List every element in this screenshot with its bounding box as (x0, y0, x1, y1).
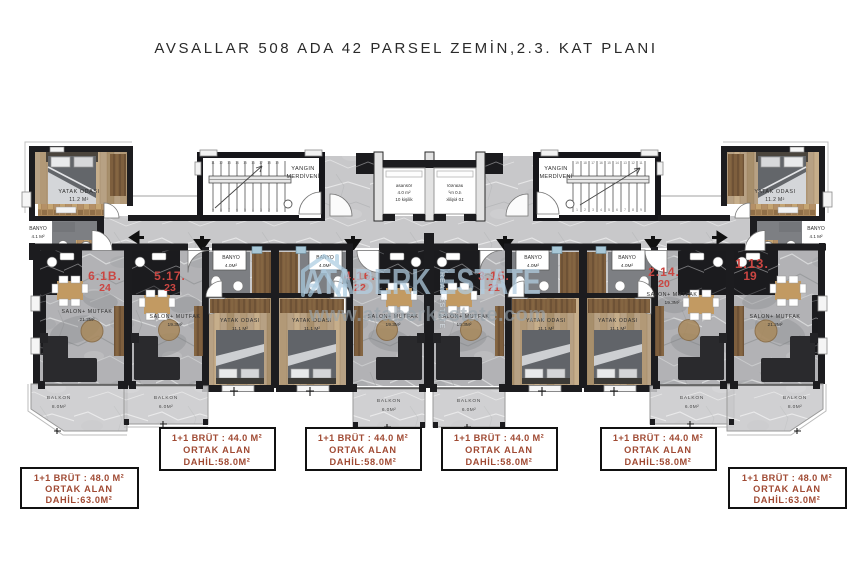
svg-text:BALKON: BALKON (783, 395, 807, 401)
svg-text:6: 6 (236, 208, 238, 212)
svg-text:4.0M²: 4.0M² (621, 263, 634, 269)
svg-text:1+1 BRÜT : 44.0 M²: 1+1 BRÜT : 44.0 M² (613, 433, 703, 443)
svg-text:1: 1 (276, 208, 278, 212)
svg-text:19: 19 (743, 269, 757, 283)
svg-text:BANYO: BANYO (524, 255, 542, 261)
svg-text:19.3M²: 19.3M² (168, 322, 183, 328)
svg-text:24: 24 (99, 282, 111, 294)
svg-text:8.0M²: 8.0M² (788, 404, 802, 410)
svg-text:MERDİVENİ: MERDİVENİ (287, 173, 320, 180)
svg-text:8.0M²: 8.0M² (52, 404, 66, 410)
svg-text:2.14.: 2.14. (648, 265, 680, 279)
svg-text:BALKON: BALKON (457, 398, 481, 404)
svg-text:4.0M²: 4.0M² (225, 263, 238, 269)
svg-text:13: 13 (623, 161, 627, 165)
svg-text:6.0M²: 6.0M² (159, 404, 173, 410)
svg-text:11: 11 (639, 161, 643, 165)
svg-text:8: 8 (632, 208, 634, 212)
svg-text:ORTAK ALAN: ORTAK ALAN (624, 445, 692, 455)
svg-text:11.2 M²: 11.2 M² (765, 197, 784, 203)
svg-text:19: 19 (575, 161, 579, 165)
svg-text:ORTAK ALAN: ORTAK ALAN (329, 445, 397, 455)
svg-text:www.ataberkestate.com: www.ataberkestate.com (308, 304, 547, 326)
svg-text:4: 4 (600, 208, 602, 212)
svg-text:5: 5 (608, 208, 610, 212)
svg-text:YATAK ODASI: YATAK ODASI (220, 318, 260, 324)
svg-text:10 kişilik: 10 kişilik (395, 197, 413, 202)
svg-text:ORTAK ALAN: ORTAK ALAN (753, 484, 821, 494)
svg-text:7: 7 (228, 208, 230, 212)
svg-text:DAHİL:58.0M²: DAHİL:58.0M² (330, 457, 397, 467)
svg-text:2: 2 (584, 208, 586, 212)
svg-text:14: 14 (615, 161, 619, 165)
svg-text:4.0 m²: 4.0 m² (397, 190, 410, 195)
svg-text:1+1 BRÜT : 48.0 M²: 1+1 BRÜT : 48.0 M² (34, 473, 124, 483)
svg-text:MERDİVENİ: MERDİVENİ (540, 173, 573, 180)
svg-text:14: 14 (235, 161, 239, 165)
svg-text:18: 18 (267, 161, 271, 165)
svg-text:11.1 M²: 11.1 M² (304, 326, 320, 332)
svg-text:SALON+ MUTFAK: SALON+ MUTFAK (750, 314, 801, 320)
svg-text:BANYO: BANYO (222, 255, 240, 261)
svg-text:DAHİL:58.0M²: DAHİL:58.0M² (625, 457, 692, 467)
svg-text:4.1 M²: 4.1 M² (809, 234, 822, 239)
svg-text:6: 6 (616, 208, 618, 212)
svg-text:17: 17 (591, 161, 595, 165)
svg-text:DAHİL:63.0M²: DAHİL:63.0M² (46, 495, 113, 505)
svg-text:ORTAK ALAN: ORTAK ALAN (465, 445, 533, 455)
svg-text:19: 19 (275, 161, 279, 165)
svg-text:6.0M²: 6.0M² (382, 407, 396, 413)
svg-text:4: 4 (252, 208, 254, 212)
svg-text:12: 12 (219, 161, 223, 165)
svg-text:2: 2 (268, 208, 270, 212)
svg-text:DAHİL:58.0M²: DAHİL:58.0M² (466, 457, 533, 467)
svg-text:ATABERK ESTATE: ATABERK ESTATE (303, 261, 541, 302)
svg-text:ORTAK ALAN: ORTAK ALAN (45, 484, 113, 494)
svg-text:11.1 M²: 11.1 M² (538, 326, 554, 332)
svg-text:YATAK ODASI: YATAK ODASI (58, 189, 99, 195)
svg-text:11.1 M²: 11.1 M² (610, 326, 626, 332)
svg-text:5: 5 (244, 208, 246, 212)
svg-text:16: 16 (251, 161, 255, 165)
svg-text:YANGIN: YANGIN (291, 166, 314, 172)
svg-text:3: 3 (260, 208, 262, 212)
svg-text:17: 17 (259, 161, 263, 165)
svg-text:11: 11 (211, 161, 215, 165)
svg-text:YANGIN: YANGIN (544, 166, 567, 172)
svg-text:ORTAK ALAN: ORTAK ALAN (183, 445, 251, 455)
svg-text:15: 15 (243, 161, 247, 165)
svg-text:6.1B.: 6.1B. (88, 269, 122, 283)
svg-text:23: 23 (164, 282, 176, 294)
svg-text:DAHİL:63.0M²: DAHİL:63.0M² (754, 495, 821, 505)
svg-text:11.1 M²: 11.1 M² (232, 326, 248, 332)
svg-text:12: 12 (631, 161, 635, 165)
svg-text:1: 1 (576, 208, 578, 212)
svg-text:SALON+ MUTFAK: SALON+ MUTFAK (62, 309, 113, 315)
svg-text:1+1 BRÜT : 48.0 M²: 1+1 BRÜT : 48.0 M² (742, 473, 832, 483)
svg-text:BANYO: BANYO (618, 255, 636, 261)
svg-text:21.2M²: 21.2M² (80, 317, 95, 323)
svg-text:1+1 BRÜT : 44.0 M²: 1+1 BRÜT : 44.0 M² (172, 433, 262, 443)
svg-text:YATAK ODASI: YATAK ODASI (754, 189, 795, 195)
svg-text:asansör: asansör (446, 183, 463, 188)
svg-text:BALKON: BALKON (377, 398, 401, 404)
svg-text:9: 9 (212, 208, 214, 212)
svg-text:BANYO: BANYO (29, 226, 47, 232)
svg-text:SALON+ MUTFAK: SALON+ MUTFAK (647, 292, 698, 298)
svg-text:3: 3 (592, 208, 594, 212)
svg-text:BANYO: BANYO (807, 226, 825, 232)
svg-text:AVSALLAR 508 ADA 42 PARSEL ZEM: AVSALLAR 508 ADA 42 PARSEL ZEMİN,2.3. KA… (154, 39, 657, 57)
svg-text:1+1 BRÜT : 44.0 M²: 1+1 BRÜT : 44.0 M² (454, 433, 544, 443)
svg-text:6.0M²: 6.0M² (685, 404, 699, 410)
svg-text:8: 8 (220, 208, 222, 212)
svg-text:YATAK ODASI: YATAK ODASI (598, 318, 638, 324)
svg-text:13: 13 (227, 161, 231, 165)
svg-text:16: 16 (599, 161, 603, 165)
svg-text:1+1 BRÜT : 44.0 M²: 1+1 BRÜT : 44.0 M² (318, 433, 408, 443)
svg-text:BALKON: BALKON (47, 395, 71, 401)
svg-text:DAHİL:58.0M²: DAHİL:58.0M² (184, 457, 251, 467)
svg-text:19.3M²: 19.3M² (665, 300, 680, 306)
svg-text:asansör: asansör (396, 183, 413, 188)
svg-text:10 kişilik: 10 kişilik (446, 197, 464, 202)
svg-text:15: 15 (607, 161, 611, 165)
svg-text:6.0M²: 6.0M² (462, 407, 476, 413)
svg-text:BALKON: BALKON (154, 395, 178, 401)
svg-text:21.2M²: 21.2M² (768, 322, 783, 328)
svg-text:9: 9 (640, 208, 642, 212)
svg-text:5.17.: 5.17. (154, 269, 186, 283)
svg-text:4.0 m²: 4.0 m² (448, 190, 461, 195)
svg-text:18: 18 (583, 161, 587, 165)
svg-text:BALKON: BALKON (680, 395, 704, 401)
svg-text:4.1 M²: 4.1 M² (31, 234, 44, 239)
svg-text:20: 20 (658, 278, 670, 290)
svg-text:7: 7 (624, 208, 626, 212)
svg-text:SALON+ MUTFAK: SALON+ MUTFAK (150, 314, 201, 320)
svg-text:11.2 M²: 11.2 M² (69, 197, 88, 203)
